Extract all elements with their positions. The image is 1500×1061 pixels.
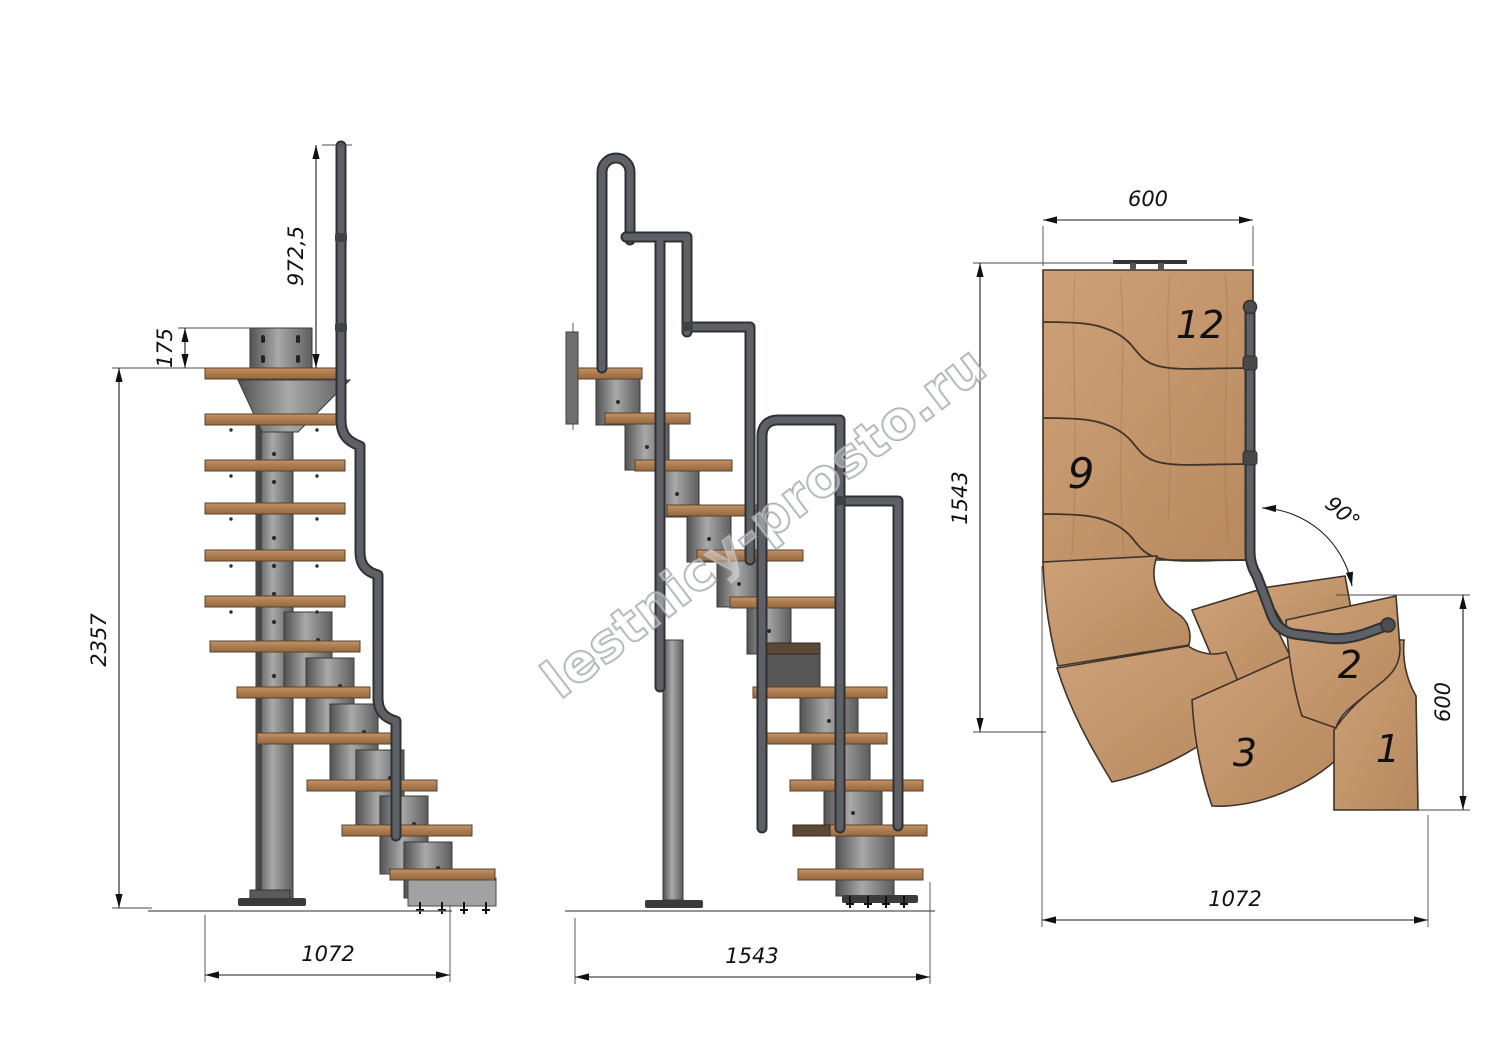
staircase-technical-drawing: 972,5 175 2357 1072 bbox=[0, 0, 1500, 1061]
dim-text-600-right: 600 bbox=[1431, 682, 1455, 722]
dim-text-1072-side: 1072 bbox=[301, 942, 354, 966]
side-elevation-view: 972,5 175 2357 1072 bbox=[87, 145, 496, 982]
rail-joint bbox=[335, 323, 347, 332]
dim-total-height: 2357 bbox=[87, 368, 205, 908]
rail-joint bbox=[335, 233, 347, 242]
dim-text-600-top: 600 bbox=[1128, 187, 1168, 211]
step-label-3: 3 bbox=[1233, 731, 1257, 775]
wall-mounting-plate bbox=[250, 328, 312, 369]
module-base-plate bbox=[842, 895, 918, 903]
step-label-1: 1 bbox=[1376, 727, 1400, 771]
entry-support-foot bbox=[408, 878, 496, 906]
dim-text-972-5: 972,5 bbox=[284, 226, 308, 286]
column-base-plate bbox=[238, 898, 306, 906]
angle-annotation: 90° bbox=[1262, 491, 1364, 586]
dim-text-1072-plan: 1072 bbox=[1208, 887, 1261, 911]
support-pole bbox=[663, 640, 683, 900]
dim-text-1543-front: 1543 bbox=[725, 944, 778, 968]
wall-plate-edge bbox=[566, 332, 578, 424]
dim-text-175: 175 bbox=[153, 328, 177, 368]
dim-side-footprint: 1072 bbox=[205, 905, 450, 982]
drawing-canvas: 972,5 175 2357 1072 bbox=[0, 0, 1500, 1061]
dim-text-2357: 2357 bbox=[87, 613, 111, 667]
step-label-2: 2 bbox=[1338, 643, 1362, 687]
dim-bracket-height: 175 bbox=[153, 328, 252, 368]
step-label-9: 9 bbox=[1068, 449, 1095, 498]
angle-text-90: 90° bbox=[1321, 491, 1365, 533]
step-label-12: 12 bbox=[1176, 303, 1224, 347]
dim-text-1543-plan: 1543 bbox=[948, 471, 972, 524]
plan-view: 12 9 3 2 1 90° 600 1 bbox=[948, 187, 1470, 927]
step-modules-side bbox=[284, 612, 452, 898]
dim-plan-top-width: 600 bbox=[1043, 187, 1253, 266]
pole-base-plate bbox=[645, 900, 703, 908]
